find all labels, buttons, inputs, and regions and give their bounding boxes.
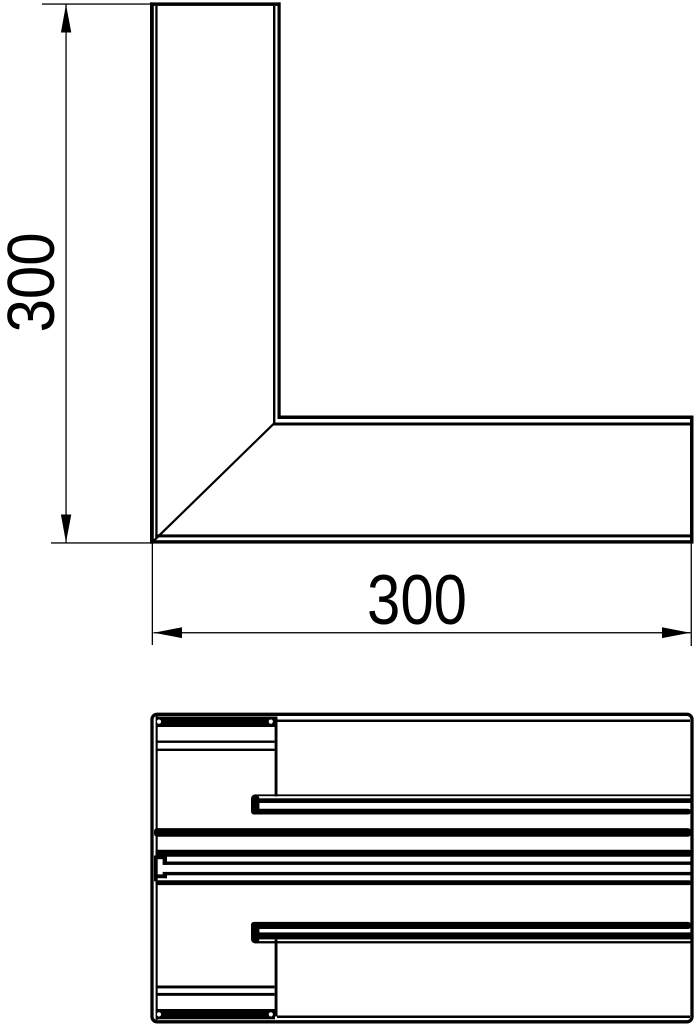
svg-text:300: 300 <box>0 232 69 332</box>
svg-text:300: 300 <box>367 560 467 639</box>
